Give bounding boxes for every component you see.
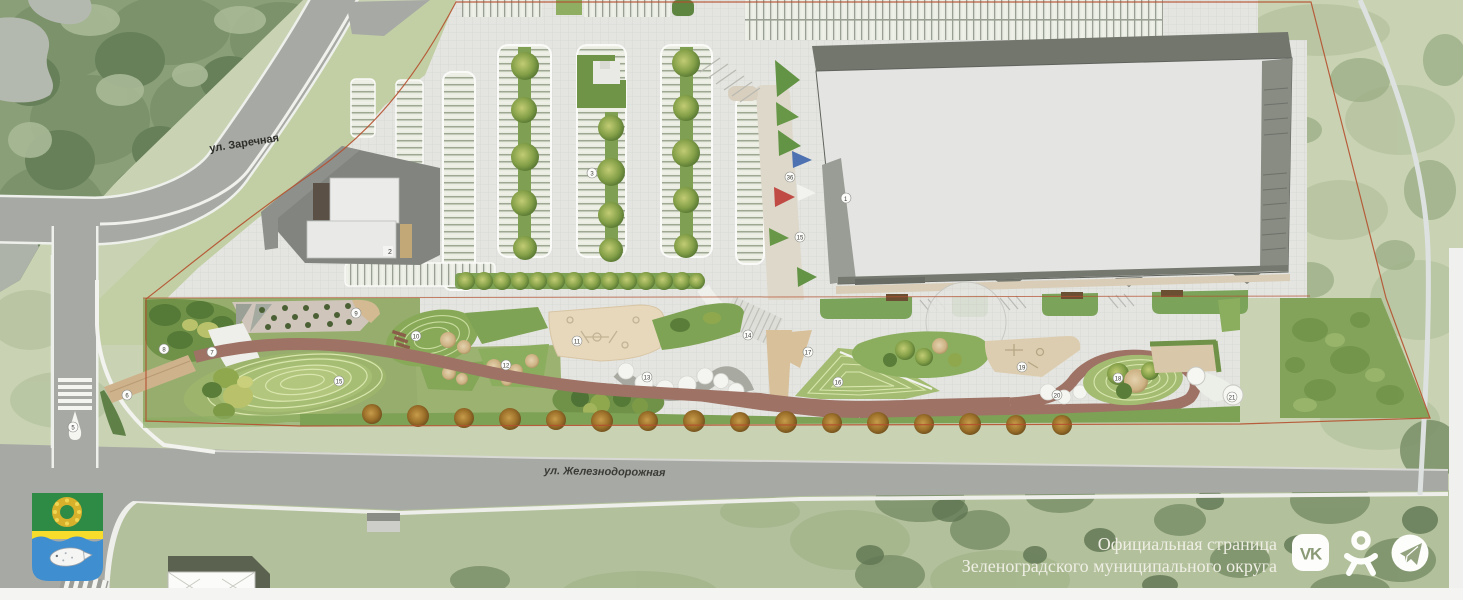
svg-text:15: 15 [336, 380, 343, 386]
svg-text:Зеленоградского муниципального: Зеленоградского муниципального округа [962, 556, 1277, 576]
svg-text:2: 2 [388, 249, 392, 256]
svg-text:12: 12 [503, 364, 510, 370]
svg-text:21: 21 [1229, 396, 1236, 402]
svg-text:14: 14 [745, 334, 752, 340]
svg-text:20: 20 [1054, 394, 1061, 400]
svg-text:Официальная страница: Официальная страница [1098, 534, 1277, 554]
svg-text:18: 18 [1115, 377, 1122, 383]
svg-text:16: 16 [835, 381, 842, 387]
svg-text:19: 19 [1019, 366, 1026, 372]
svg-text:13: 13 [644, 376, 651, 382]
svg-text:11: 11 [574, 340, 581, 346]
svg-text:10: 10 [413, 335, 420, 341]
svg-text:VK: VK [1300, 545, 1323, 564]
svg-text:ул. Железнодорожная: ул. Железнодорожная [543, 465, 666, 479]
svg-text:15: 15 [797, 236, 804, 242]
svg-text:36: 36 [787, 176, 794, 182]
svg-text:17: 17 [805, 351, 812, 357]
